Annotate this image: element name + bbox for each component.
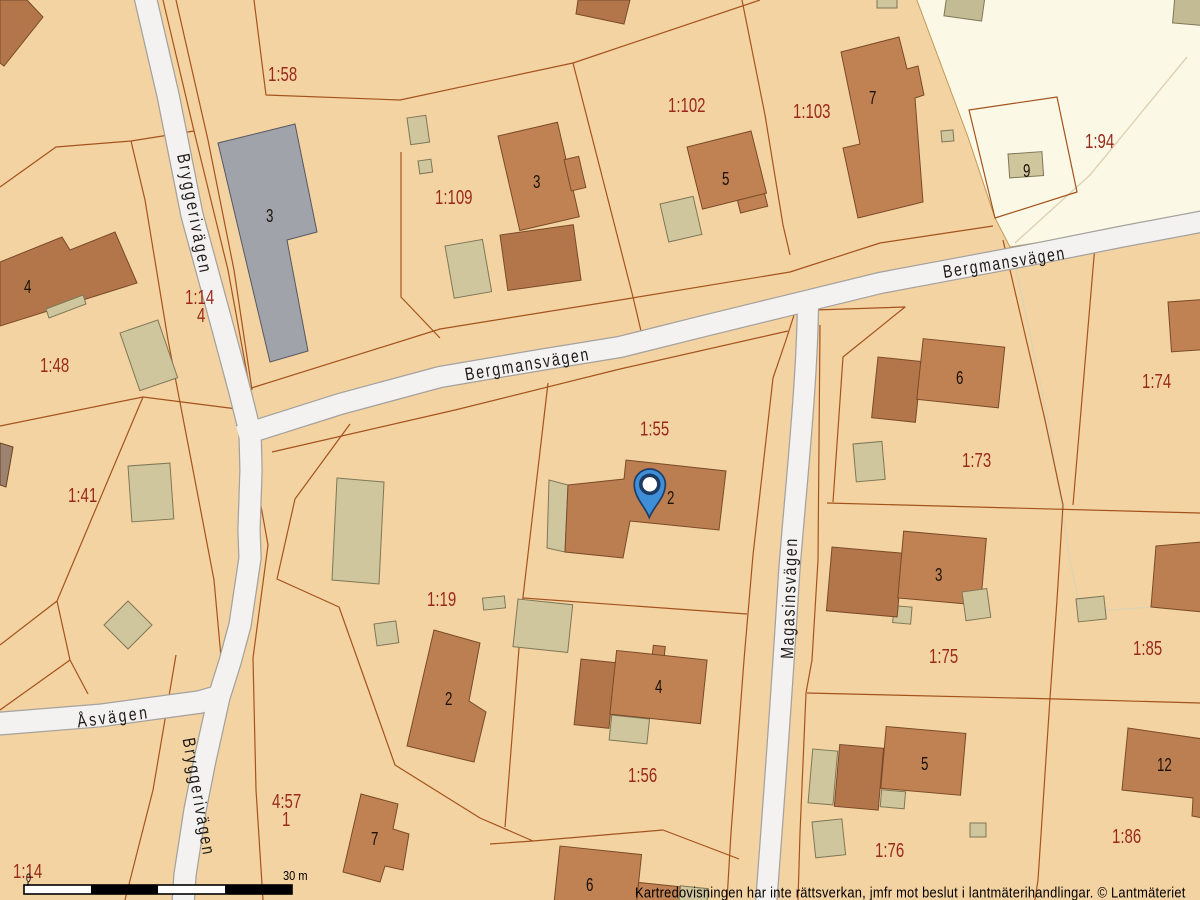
svg-text:1:48: 1:48 xyxy=(40,354,69,377)
svg-text:4: 4 xyxy=(655,677,662,698)
svg-text:7: 7 xyxy=(869,88,876,109)
svg-text:1:55: 1:55 xyxy=(640,417,669,440)
svg-text:1:58: 1:58 xyxy=(268,63,297,86)
svg-text:1:102: 1:102 xyxy=(668,94,705,117)
svg-text:1:41: 1:41 xyxy=(68,484,97,507)
svg-text:4: 4 xyxy=(24,277,31,298)
svg-text:5: 5 xyxy=(722,169,729,190)
svg-text:1:94: 1:94 xyxy=(1085,130,1114,153)
svg-text:0: 0 xyxy=(26,872,31,886)
svg-text:1:19: 1:19 xyxy=(427,588,456,611)
svg-text:3: 3 xyxy=(266,206,273,227)
svg-text:1: 1 xyxy=(282,808,290,831)
svg-text:9: 9 xyxy=(1023,161,1030,182)
svg-text:1:76: 1:76 xyxy=(875,839,904,862)
svg-text:1:56: 1:56 xyxy=(628,764,657,787)
svg-text:1:109: 1:109 xyxy=(435,186,472,209)
svg-text:1:86: 1:86 xyxy=(1112,825,1141,848)
svg-text:6: 6 xyxy=(586,875,593,896)
svg-text:30 m: 30 m xyxy=(283,868,308,883)
svg-text:Magasinsvägen: Magasinsvägen xyxy=(777,538,801,659)
svg-text:3: 3 xyxy=(935,565,942,586)
svg-text:5: 5 xyxy=(921,754,928,775)
svg-text:1:75: 1:75 xyxy=(929,645,958,668)
svg-text:Kartredovisningen har inte rät: Kartredovisningen har inte rättsverkan, … xyxy=(635,884,1186,900)
svg-text:3: 3 xyxy=(533,172,540,193)
svg-text:2: 2 xyxy=(445,689,452,710)
svg-text:2: 2 xyxy=(667,488,674,509)
svg-text:4: 4 xyxy=(197,304,205,327)
svg-text:1:74: 1:74 xyxy=(1142,370,1171,393)
svg-text:1:85: 1:85 xyxy=(1133,637,1162,660)
svg-text:1:73: 1:73 xyxy=(962,449,991,472)
svg-text:6: 6 xyxy=(956,368,963,389)
svg-text:7: 7 xyxy=(371,829,378,850)
svg-text:1:103: 1:103 xyxy=(793,100,831,123)
svg-text:12: 12 xyxy=(1157,755,1172,776)
